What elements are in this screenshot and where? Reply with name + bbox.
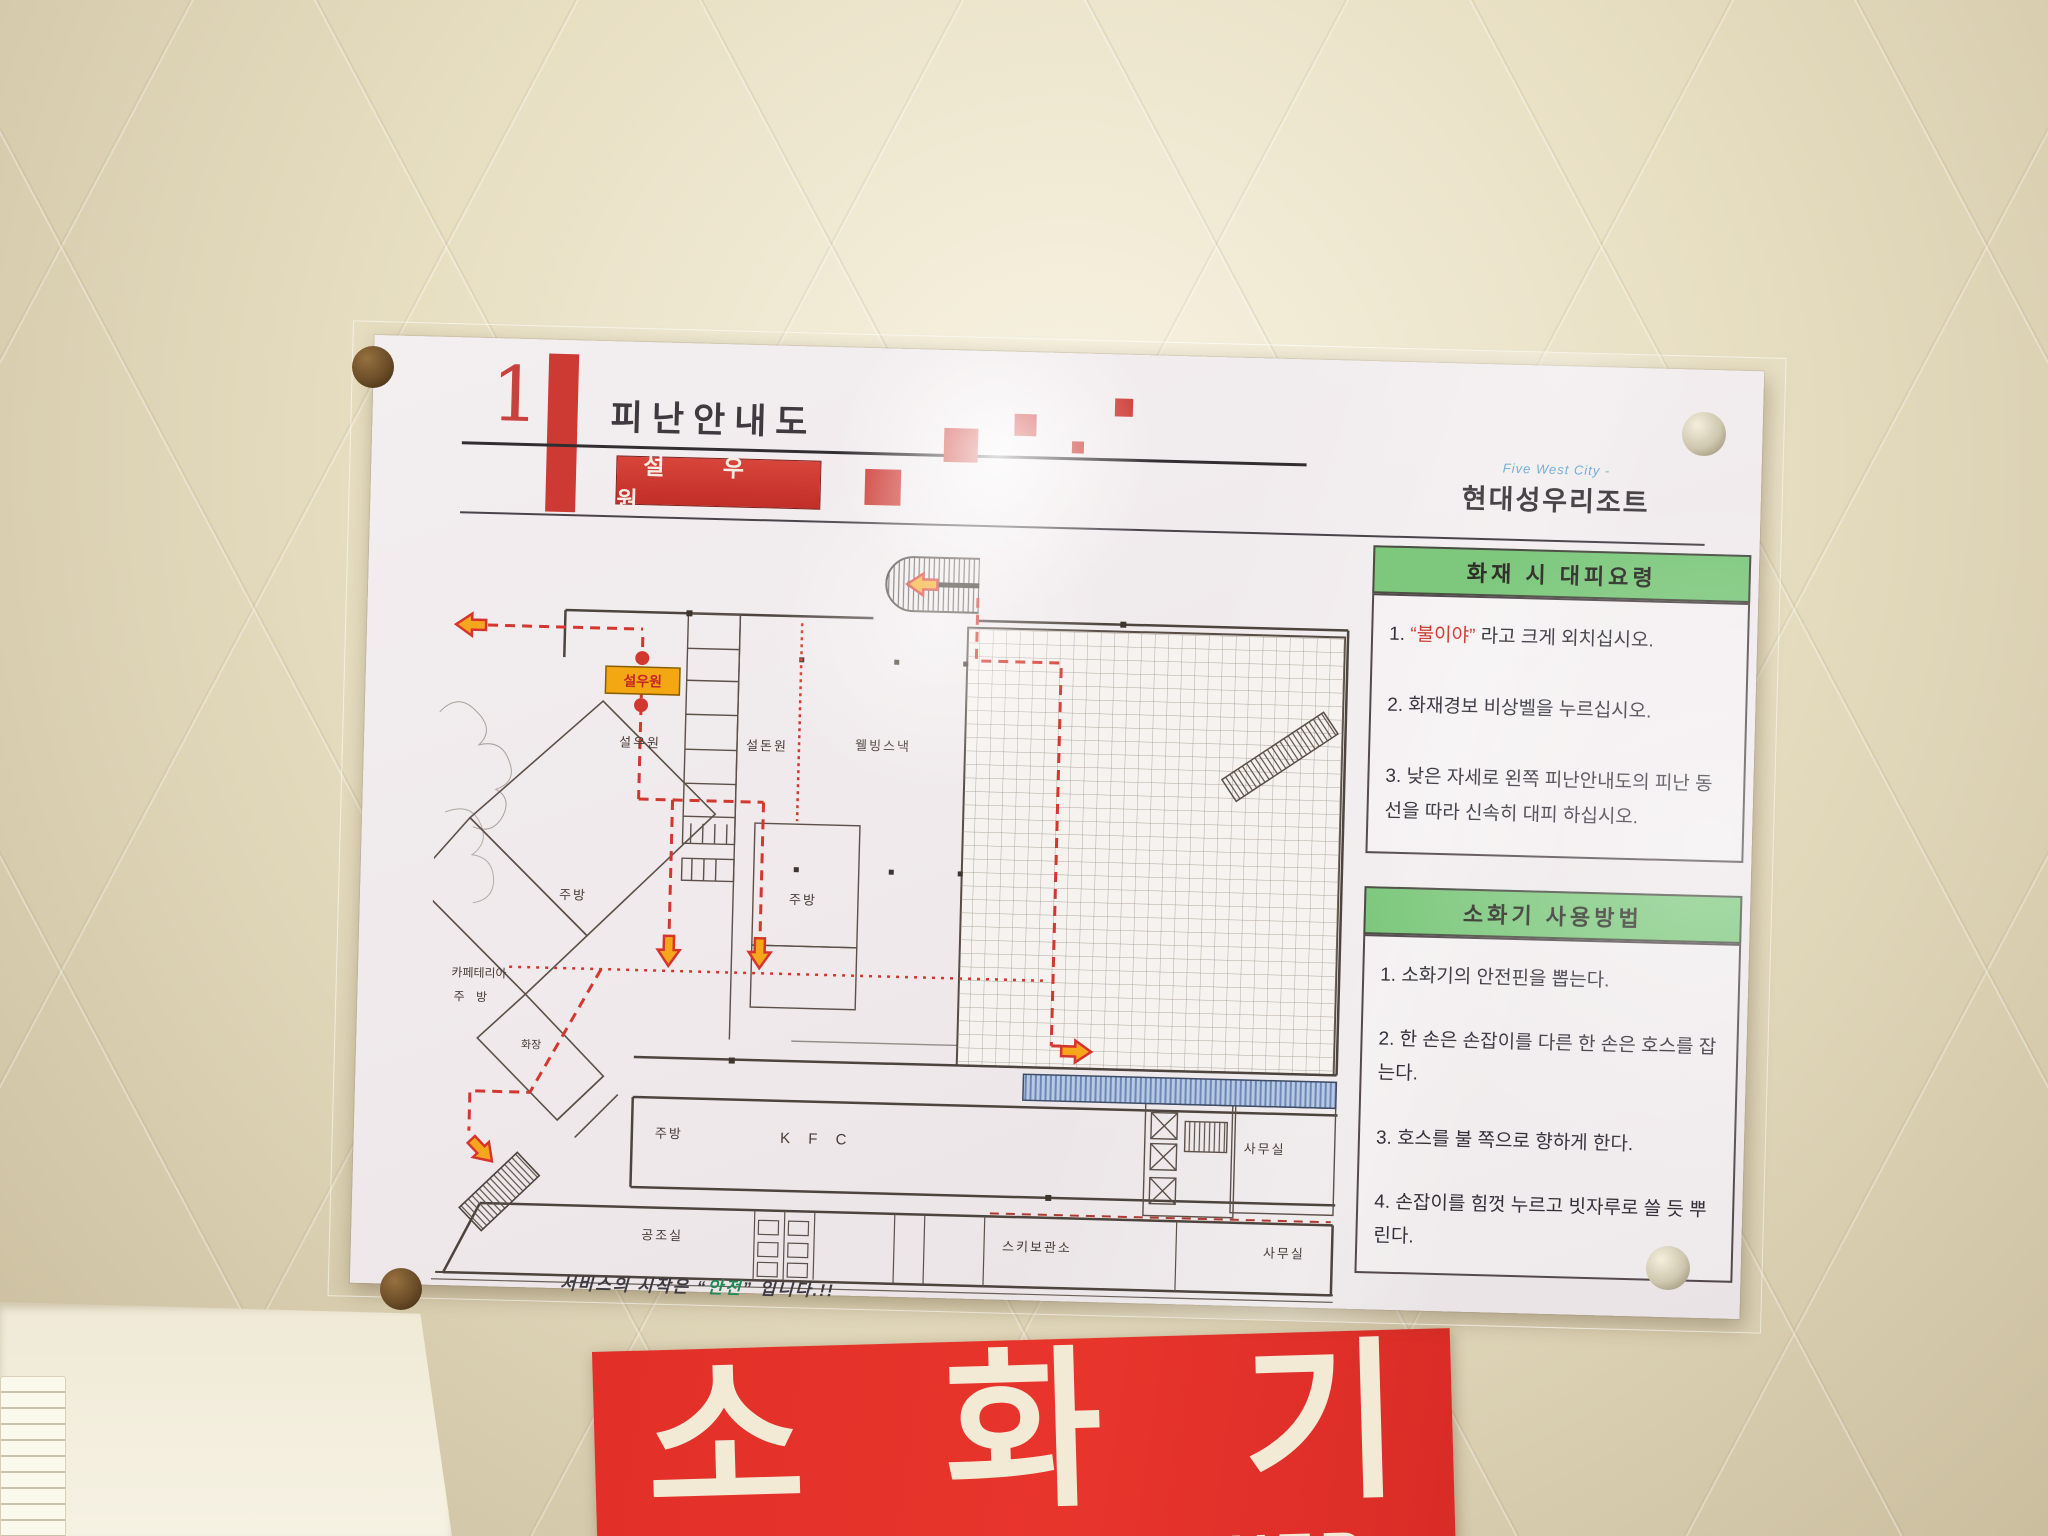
room-label-kitchen-nw: 주방 xyxy=(559,887,587,903)
title-underline xyxy=(462,441,1307,466)
room-label-seoldonwon: 설돈원 xyxy=(746,738,788,754)
room-label-restroom: 화장 xyxy=(521,1038,542,1052)
room-label-kfc: K F C xyxy=(780,1130,854,1149)
arrow-stair-down-1 xyxy=(657,936,680,967)
evacuation-item-3: 3. 낮은 자세로 왼쪽 피난안내도의 피난 동선을 따라 신속히 대피 하십시… xyxy=(1384,760,1730,837)
floor-plan: 설우원 설우원 설돈원 웰빙스낵 주방 주방 카페테리아 주 방 화장 주방 K… xyxy=(423,537,1357,1306)
pin-top-left xyxy=(352,346,394,388)
wall-vent xyxy=(0,1376,66,1536)
fire-shout-word: “불이야” xyxy=(1410,624,1476,647)
extinguisher-item-1: 1. 소화기의 안전핀을 뽑는다. xyxy=(1380,959,1725,1002)
arrow-west-exit-left xyxy=(456,613,487,636)
resort-logo: Five West City - 현대성우리조트 xyxy=(1390,458,1721,523)
decor-square xyxy=(1115,398,1133,416)
route-node xyxy=(634,698,648,712)
decor-square xyxy=(1072,441,1084,453)
evacuation-item-2: 2. 화재경보 비상벨을 누르십시오. xyxy=(1387,689,1732,732)
lower-white-wall xyxy=(0,1302,452,1536)
route-node xyxy=(635,651,649,665)
room-label-cafeteria-2: 주 방 xyxy=(453,989,491,1004)
you-are-here-label: 설우원 xyxy=(623,673,662,690)
evacuation-panel-body: 1. “불이야” 라고 크게 외치십시오. 2. 화재경보 비상벨을 누르십시오… xyxy=(1365,593,1750,863)
service-column-block xyxy=(677,613,968,1045)
arrow-sw-stair xyxy=(463,1132,500,1169)
decor-square xyxy=(944,428,979,463)
evacuation-guide-poster: 1 피난안내도 설 우 원 Five West City - 현대성우리조트 화… xyxy=(350,335,1764,1319)
slogan-highlight: 안전 xyxy=(707,1278,743,1298)
extinguisher-panel-body: 1. 소화기의 안전핀을 뽑는다. 2. 한 손은 손잡이를 다른 한 손은 호… xyxy=(1354,934,1741,1283)
hall-floor-grid xyxy=(957,628,1345,1076)
room-label-hvac: 공조실 xyxy=(641,1227,683,1243)
pin-bottom-right xyxy=(1646,1246,1690,1290)
kitchen-wing xyxy=(423,696,718,1141)
bottom-left-stair xyxy=(459,1152,539,1230)
landscape-outline xyxy=(443,808,496,903)
extinguisher-item-2: 2. 한 손은 손잡이를 다른 한 손은 호스를 잡는다. xyxy=(1377,1023,1723,1100)
room-label-ski-storage: 스키보관소 xyxy=(1002,1239,1072,1256)
photo-of-wall: 소 화 기 FIRE EXTINGUISHER 1 피난안내도 설 우 원 Fi… xyxy=(0,0,2048,1536)
location-badge: 설 우 원 xyxy=(615,455,821,509)
room-label-seolwoowon: 설우원 xyxy=(619,735,661,751)
room-label-office-lower: 사무실 xyxy=(1263,1246,1305,1262)
pin-top-right xyxy=(1682,412,1726,456)
decor-square xyxy=(864,469,901,506)
slogan-post: ” 입니다.!! xyxy=(742,1279,835,1300)
floor-number: 1 xyxy=(490,356,540,433)
header-red-bar xyxy=(545,354,579,513)
resort-logo-name: 현대성우리조트 xyxy=(1390,475,1721,523)
blue-corridor xyxy=(1023,1074,1337,1108)
room-label-kitchen-mid: 주방 xyxy=(789,892,817,908)
pin-bottom-left xyxy=(380,1268,422,1310)
poster-title: 피난안내도 xyxy=(610,389,817,445)
fire-shutter-line xyxy=(797,623,802,821)
room-label-office-upper: 사무실 xyxy=(1244,1141,1286,1157)
decor-square xyxy=(1014,414,1037,437)
extinguisher-item-3: 3. 호스를 불 쪽으로 향하게 한다. xyxy=(1376,1121,1721,1164)
room-label-cafeteria-1: 카페테리아 xyxy=(451,965,507,980)
room-label-kitchen-kfc: 주방 xyxy=(655,1126,683,1142)
fire-extinguisher-sign: 소 화 기 FIRE EXTINGUISHER xyxy=(592,1328,1458,1536)
slogan-pre: 서비스의 시작은 “ xyxy=(560,1274,708,1297)
evacuation-item-1: 1. “불이야” 라고 크게 외치십시오. xyxy=(1389,618,1734,661)
room-label-wellbeing-snack: 웰빙스낵 xyxy=(855,738,911,754)
fire-sign-korean-text: 소 화 기 xyxy=(592,1330,1455,1534)
